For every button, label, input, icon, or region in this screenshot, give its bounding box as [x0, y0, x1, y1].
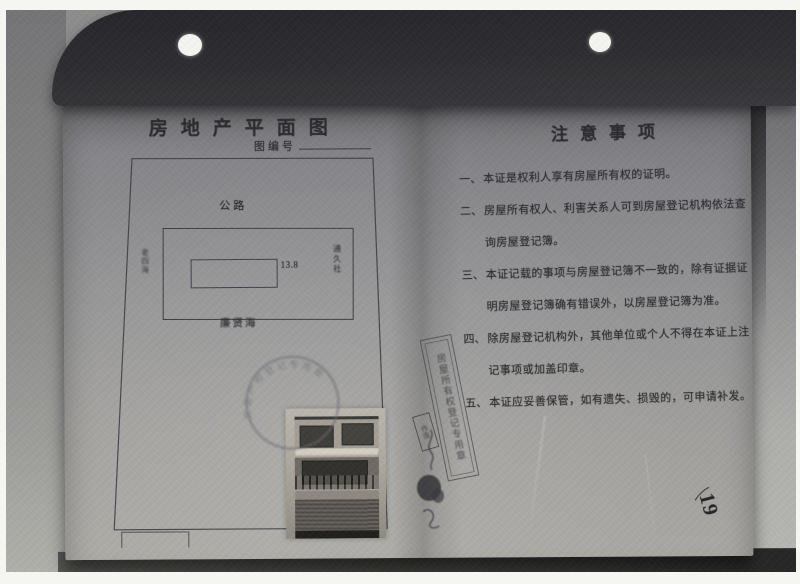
- binder-hole-right: [589, 32, 611, 52]
- binder-hole-left: [178, 34, 202, 56]
- balcony-railing: [295, 475, 379, 490]
- next-page-box-edge: [121, 531, 189, 547]
- notice-item: 三、本证记载的事项与房屋登记簿不一致的，除有证据证明房屋登记簿确有错误外，以房屋…: [461, 252, 755, 324]
- notice-title: 注意事项: [468, 115, 751, 148]
- round-seal-text: 房屋产权登记专用章: [241, 358, 328, 420]
- svg-text:房屋产权登记专用章: 房屋产权登记专用章: [241, 358, 328, 420]
- notice-item: 五、本证应妥善保管，如有遗失、损毁的，可申请补发。: [465, 380, 758, 420]
- plan-west-label: 老四海: [140, 249, 151, 275]
- plan-building-outline: [191, 259, 278, 289]
- notice-list: 一、本证是权利人享有房屋所有权的证明。二、房屋所有权人、利害关系人可到房屋登记机…: [459, 156, 758, 420]
- plan-east-label: 通久社: [331, 244, 342, 274]
- notice-item-number: 一、: [459, 163, 482, 196]
- plan-south-label: 廉贤海: [220, 315, 258, 330]
- roller-shutter: [295, 499, 379, 531]
- certificate-page: 房地产平面图 图编号 公路 13.8 通久社 老四海 廉贤海: [63, 94, 754, 560]
- floor-plan-title: 房地产平面图: [149, 112, 341, 140]
- photo-of-certificate: 房地产平面图 图编号 公路 13.8 通久社 老四海 廉贤海: [6, 10, 796, 572]
- notice-item: 四、除房屋登记机构外，其他单位或个人不得在本证上注记事项或加盖印章。: [463, 316, 757, 388]
- notice-item-number: 三、: [461, 259, 484, 292]
- notice-item-number: 二、: [460, 195, 483, 228]
- paper-crease: [645, 455, 658, 555]
- notice-item: 二、房屋所有权人、利害关系人可到房屋登记机构依法查询房屋登记簿。: [460, 188, 754, 260]
- storefront-sign-band: [295, 489, 379, 500]
- handwritten-signature-scribble: [409, 426, 460, 536]
- plan-north-label: 公路: [219, 197, 247, 213]
- booklet-cover-flap: [52, 10, 796, 106]
- notice-item-number: 四、: [463, 323, 486, 356]
- drawing-number-label: 图编号: [254, 137, 371, 154]
- drawing-number-text: 图编号: [254, 141, 296, 153]
- plan-width-dimension: 13.8: [281, 260, 299, 270]
- notice-item-line: 本证应妥善保管，如有遗失、损毁的，可申请补发。: [489, 380, 758, 419]
- handwritten-check-mark: [691, 484, 713, 506]
- building-base-shadow: [295, 530, 379, 539]
- notice-section: 注意事项 一、本证是权利人享有房屋所有权的证明。二、房屋所有权人、利害关系人可到…: [458, 115, 758, 420]
- building-balcony-level: [295, 457, 379, 490]
- drawing-number-blank-line: [299, 137, 371, 149]
- notice-item-number: 五、: [465, 387, 488, 420]
- paper-crease: [526, 416, 546, 545]
- round-official-seal: 房屋产权登记专用章: [236, 346, 349, 459]
